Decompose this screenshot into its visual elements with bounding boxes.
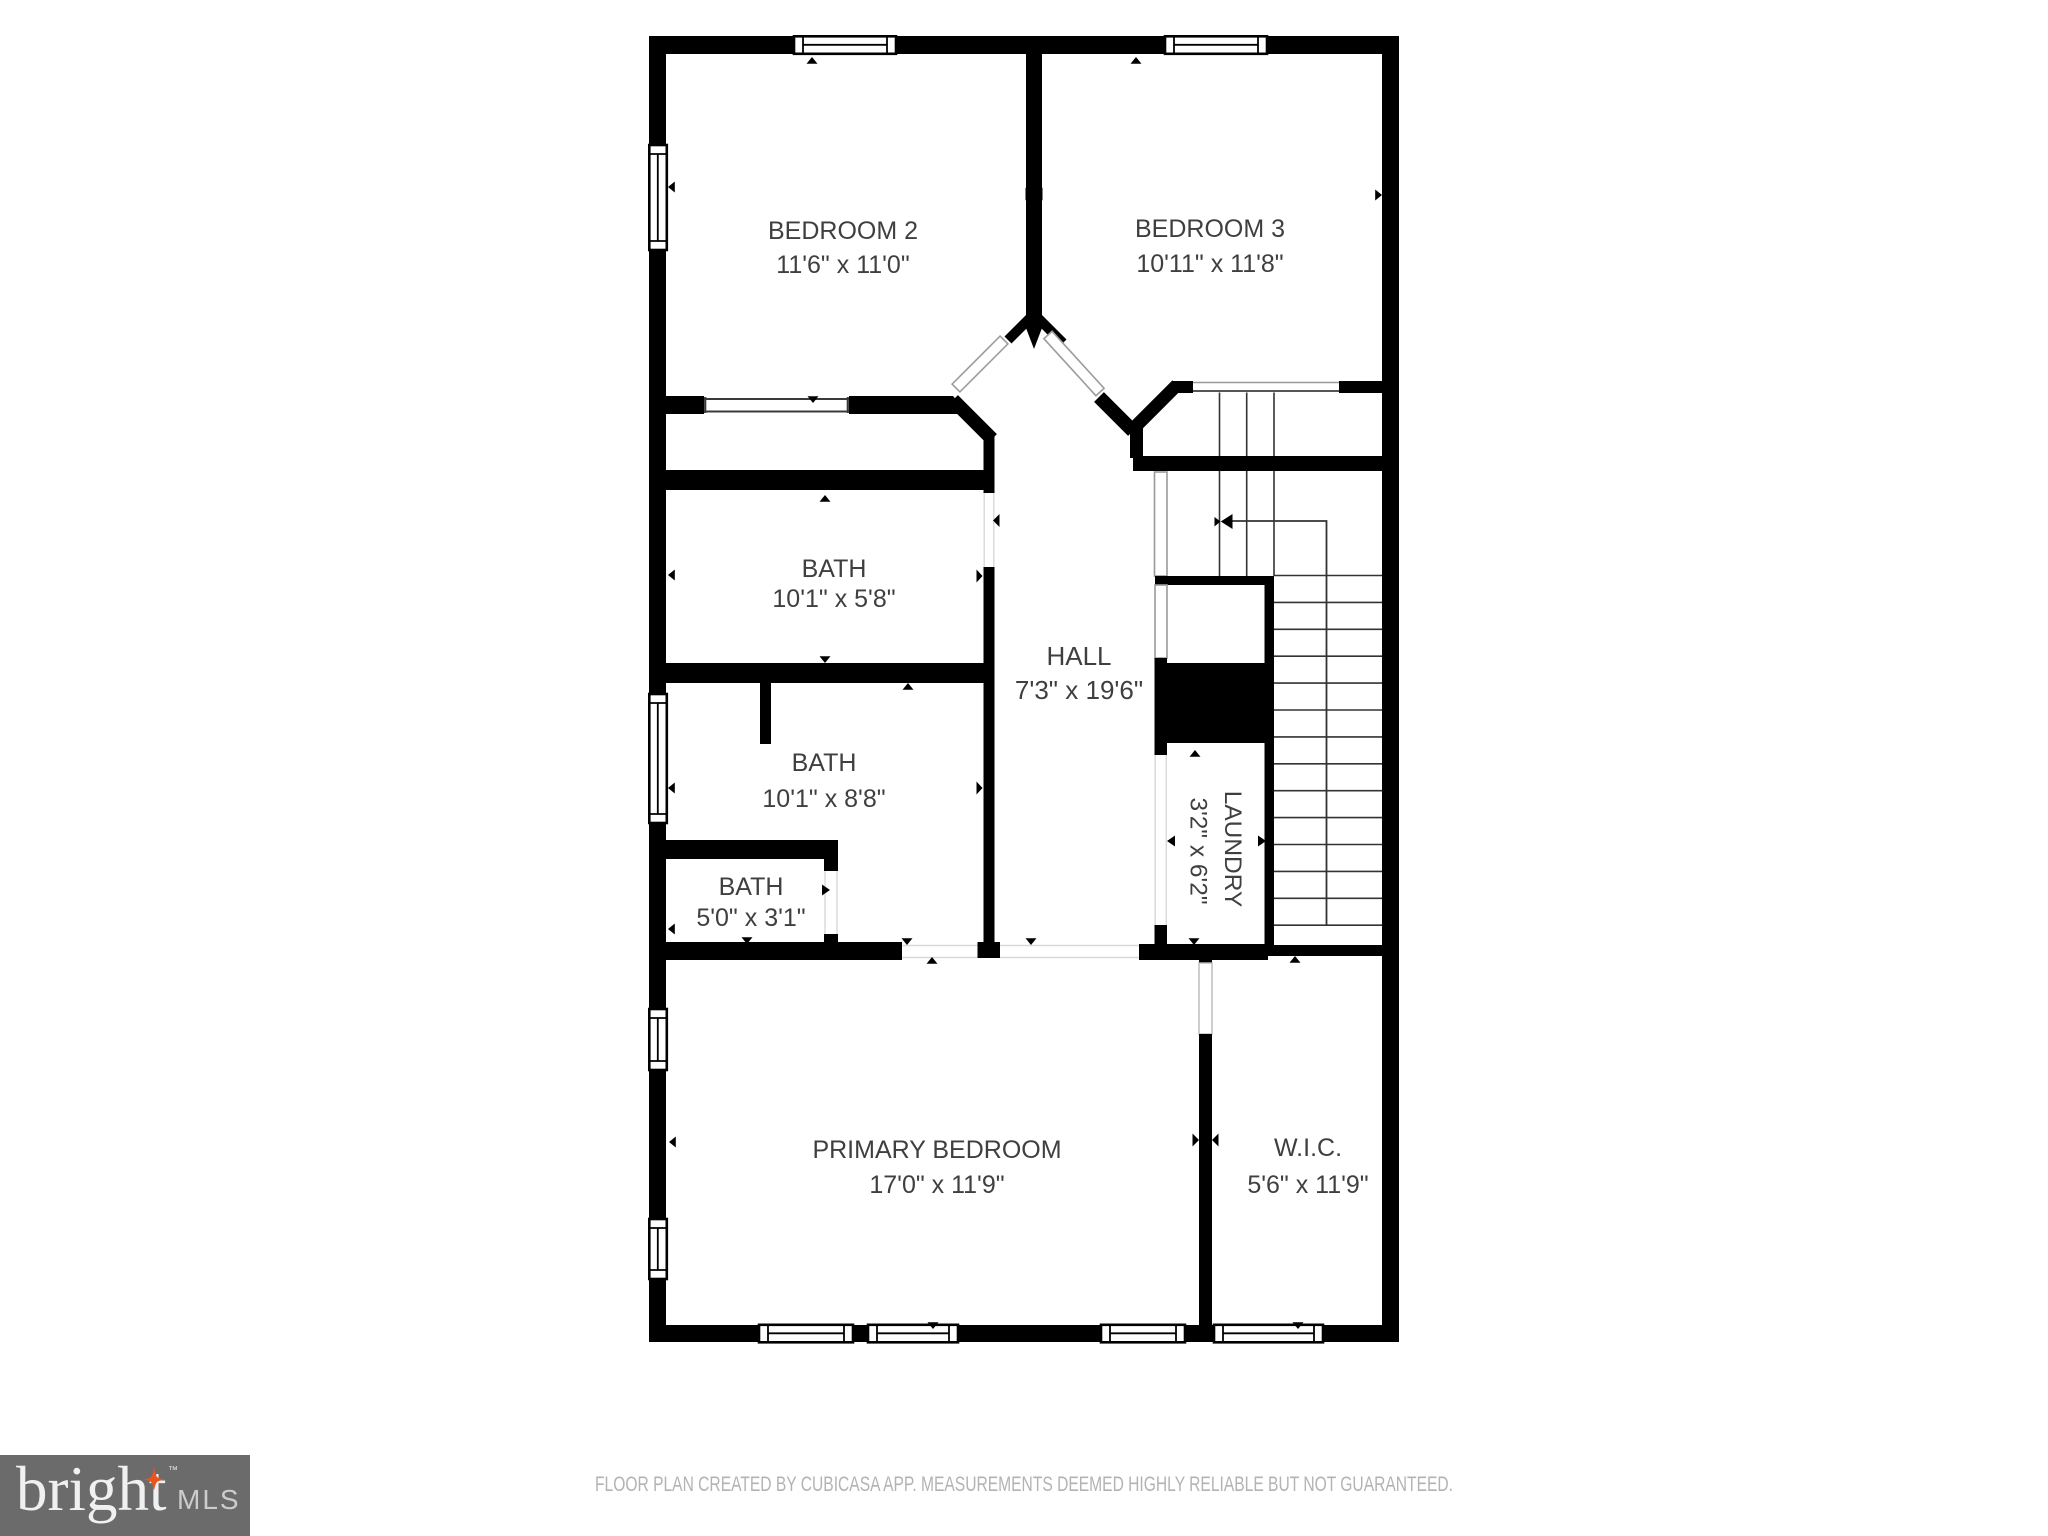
svg-text:BATH: BATH bbox=[792, 749, 857, 777]
svg-text:3'2" x 6'2": 3'2" x 6'2" bbox=[1184, 797, 1211, 904]
svg-text:W.I.C.: W.I.C. bbox=[1274, 1134, 1342, 1162]
svg-text:10'11" x 11'8": 10'11" x 11'8" bbox=[1136, 250, 1283, 278]
svg-text:7'3" x 19'6": 7'3" x 19'6" bbox=[1015, 675, 1143, 705]
svg-text:PRIMARY BEDROOM: PRIMARY BEDROOM bbox=[812, 1136, 1061, 1164]
svg-text:11'6" x 11'0": 11'6" x 11'0" bbox=[776, 251, 909, 279]
svg-text:HALL: HALL bbox=[1046, 641, 1111, 671]
svg-text:10'1" x 8'8": 10'1" x 8'8" bbox=[762, 785, 885, 813]
svg-text:5'0" x 3'1": 5'0" x 3'1" bbox=[696, 904, 805, 932]
svg-text:BATH: BATH bbox=[802, 555, 867, 583]
svg-text:bright: bright bbox=[16, 1454, 167, 1524]
svg-text:LAUNDRY: LAUNDRY bbox=[1219, 791, 1246, 908]
svg-text:17'0" x 11'9": 17'0" x 11'9" bbox=[869, 1171, 1004, 1199]
svg-text:MLS: MLS bbox=[177, 1484, 241, 1515]
svg-text:BEDROOM 2: BEDROOM 2 bbox=[768, 217, 918, 245]
svg-text:10'1" x 5'8": 10'1" x 5'8" bbox=[772, 585, 895, 613]
svg-text:5'6" x 11'9": 5'6" x 11'9" bbox=[1247, 1171, 1368, 1199]
svg-text:BEDROOM 3: BEDROOM 3 bbox=[1135, 215, 1285, 243]
svg-text:FLOOR PLAN CREATED BY CUBICASA: FLOOR PLAN CREATED BY CUBICASA APP. MEAS… bbox=[595, 1473, 1453, 1496]
svg-text:™: ™ bbox=[168, 1465, 178, 1476]
svg-text:BATH: BATH bbox=[719, 873, 784, 901]
